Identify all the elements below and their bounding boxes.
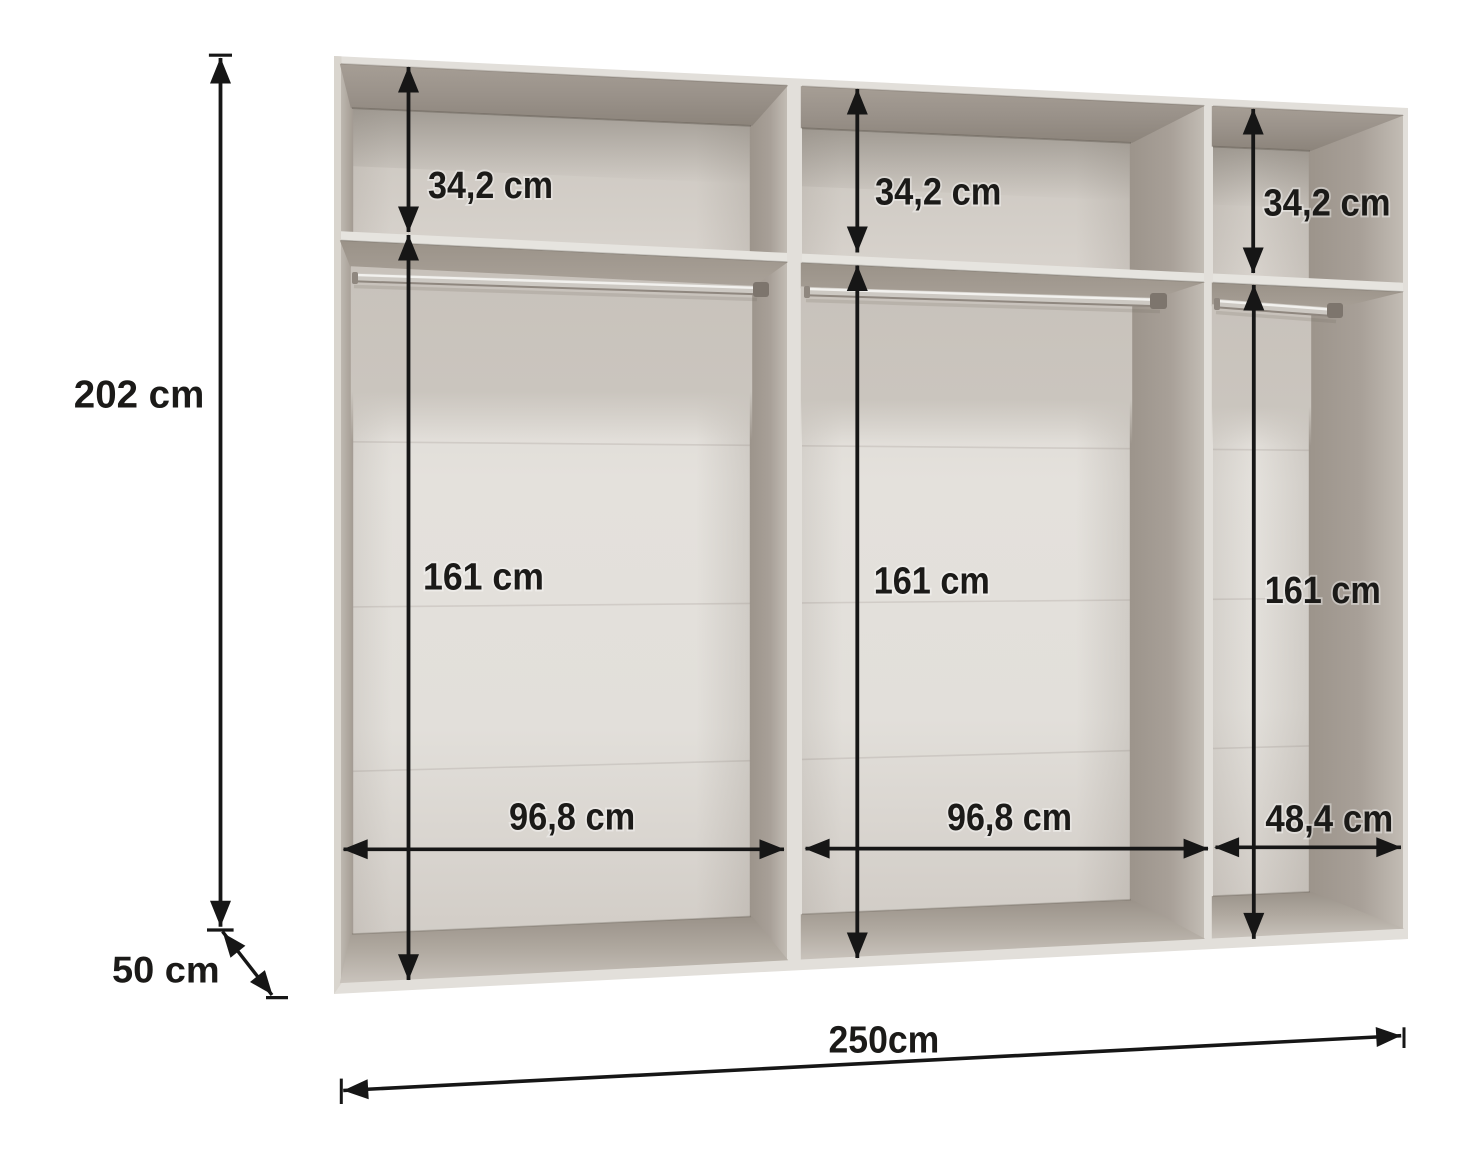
svg-text:50 cm: 50 cm xyxy=(112,949,220,990)
svg-text:250cm: 250cm xyxy=(829,1020,940,1062)
svg-text:48,4 cm: 48,4 cm xyxy=(1265,799,1393,841)
svg-text:96,8 cm: 96,8 cm xyxy=(947,797,1072,839)
svg-text:161 cm: 161 cm xyxy=(423,557,544,599)
svg-text:161 cm: 161 cm xyxy=(874,561,990,603)
svg-text:96,8 cm: 96,8 cm xyxy=(509,797,635,839)
svg-text:34,2 cm: 34,2 cm xyxy=(1263,182,1390,224)
svg-text:202 cm: 202 cm xyxy=(74,374,205,417)
svg-text:34,2 cm: 34,2 cm xyxy=(428,165,553,207)
svg-text:161 cm: 161 cm xyxy=(1265,570,1381,612)
svg-text:34,2 cm: 34,2 cm xyxy=(875,171,1001,213)
